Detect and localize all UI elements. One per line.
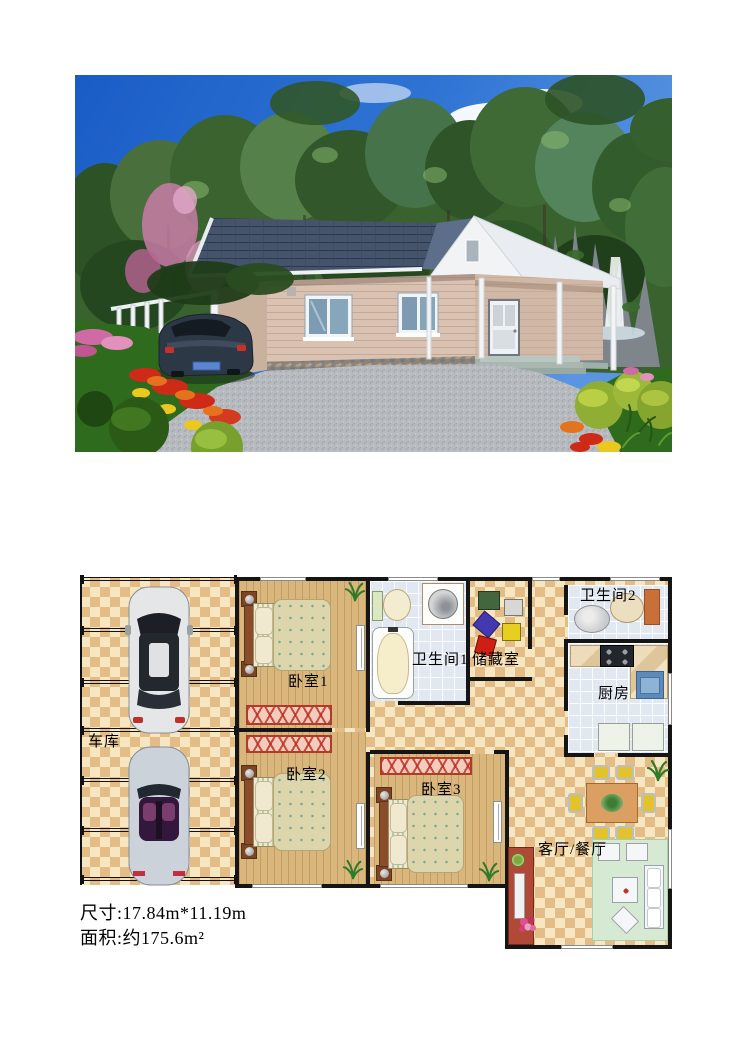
plant-icon xyxy=(342,859,364,881)
parked-car xyxy=(151,314,255,384)
bed-bedroom1 xyxy=(241,591,333,677)
dining-chair xyxy=(568,793,583,813)
toilet1-tank xyxy=(372,591,383,621)
wall-bedroom3-top-b xyxy=(494,750,505,754)
carport-beam xyxy=(80,577,237,581)
bathtub-inner xyxy=(377,633,409,694)
house-exterior-photo xyxy=(75,75,672,452)
coffee-table xyxy=(612,877,638,903)
kitchen-appliance-1 xyxy=(598,723,630,751)
wall-storage-bottom xyxy=(466,677,532,681)
wall-bedroom1-right xyxy=(366,577,370,732)
wall-left xyxy=(235,577,239,888)
dining-chair xyxy=(641,793,656,813)
toilet1-bowl xyxy=(383,589,411,621)
kitchen-sink-basin xyxy=(640,677,660,694)
armchair xyxy=(626,843,648,861)
window-mark xyxy=(610,577,660,581)
spec-block: 尺寸:17.84m*11.19m 面积:约175.6m² xyxy=(80,901,246,951)
kitchen-appliance-2 xyxy=(632,723,664,751)
wall-bath2-kitchen-divider xyxy=(564,639,672,643)
front-window-right xyxy=(396,293,440,337)
window-mark xyxy=(252,884,322,888)
wall-storage-right xyxy=(528,577,532,649)
window-bedroom2 xyxy=(356,803,365,849)
bathtub-faucet xyxy=(388,627,398,632)
exterior-scene xyxy=(75,75,672,452)
rug-bedroom3 xyxy=(380,757,472,775)
sofa xyxy=(644,865,664,929)
wall-bedroom3-top-a xyxy=(370,750,470,754)
convertible-top-view xyxy=(123,745,195,887)
spec-dimensions: 尺寸:17.84m*11.19m xyxy=(80,901,246,926)
wall-bedroom1-2-divider xyxy=(235,728,332,732)
wall-bathroom1-right xyxy=(466,577,470,705)
wall-bedroom2-right xyxy=(366,752,370,884)
wall-front xyxy=(267,274,475,369)
kitchen-stove xyxy=(600,645,634,667)
wall-kitchen-left-a xyxy=(564,585,568,615)
room-label-bedroom1: 卧室1 xyxy=(288,675,329,690)
plant-icon xyxy=(478,861,500,883)
floor-plan: 车库 卧室1 卧室2 卧室3 卫生间1 卫生间2 储藏室 厨房 客厅/餐厅 xyxy=(80,577,672,949)
window-mark xyxy=(380,884,468,888)
plant-icon xyxy=(344,581,366,603)
toilet2-tank xyxy=(644,589,660,625)
wall-kitchen-bottom-b xyxy=(618,753,672,757)
room-label-kitchen: 厨房 xyxy=(598,687,630,702)
page: { "photo": { "subject": "single-story-ho… xyxy=(0,0,745,1053)
plant-icon xyxy=(646,759,670,783)
wall-kitchen-bottom-a xyxy=(564,753,594,757)
suv-top-view xyxy=(123,585,195,735)
room-label-bathroom2: 卫生间2 xyxy=(580,589,637,604)
room-label-living: 客厅/餐厅 xyxy=(538,843,607,858)
attic-window xyxy=(466,240,479,262)
sink1-basin xyxy=(428,589,458,619)
window-mark xyxy=(668,829,672,889)
wall-kitchen-left-c xyxy=(564,735,568,753)
window-mark xyxy=(561,945,613,949)
room-label-storage: 储藏室 xyxy=(472,653,520,668)
storage-box-yellow xyxy=(502,623,521,641)
room-label-garage: 车库 xyxy=(88,735,120,750)
storage-box-green xyxy=(478,591,500,610)
spec-area: 面积:约175.6m² xyxy=(80,926,246,951)
rug-bedroom1 xyxy=(246,705,332,725)
window-bedroom3 xyxy=(493,801,502,843)
front-door xyxy=(488,299,520,356)
storage-box-silver xyxy=(504,599,523,616)
dining-chair xyxy=(592,765,610,780)
window-mark xyxy=(532,577,560,581)
flower-cluster-icon xyxy=(516,913,540,937)
room-label-bathroom1: 卫生间1 xyxy=(412,653,469,668)
room-label-bedroom2: 卧室2 xyxy=(286,768,327,783)
dining-chair xyxy=(616,765,634,780)
rug-bedroom2 xyxy=(246,735,332,753)
sink2-basin xyxy=(574,605,610,633)
front-window-left xyxy=(303,295,354,341)
wall-vent xyxy=(287,287,296,296)
bed-bedroom3 xyxy=(376,787,466,881)
wall-kitchen-left-b xyxy=(564,639,568,711)
wall-bathroom1-bottom xyxy=(398,701,470,705)
dining-centerpiece xyxy=(601,794,623,812)
console-bowl xyxy=(511,853,525,867)
window-mark xyxy=(668,673,672,725)
room-label-bedroom3: 卧室3 xyxy=(421,783,462,798)
window-bedroom1 xyxy=(356,625,365,671)
window-mark xyxy=(388,577,438,581)
window-mark xyxy=(260,577,306,581)
